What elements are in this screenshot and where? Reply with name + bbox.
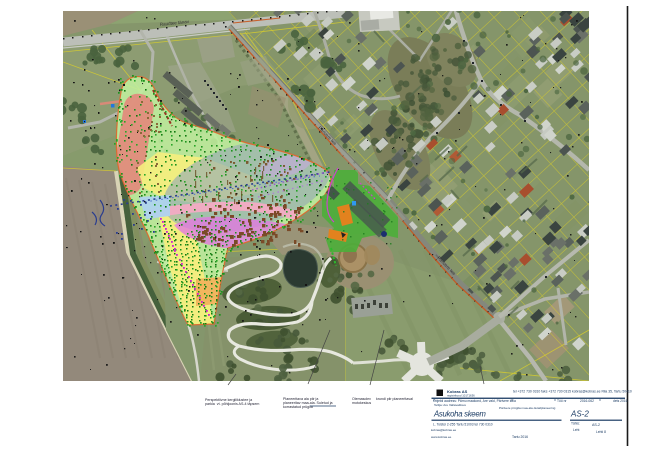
svg-text:Töö nr: Töö nr (557, 399, 567, 403)
svg-text:Tartu 2016: Tartu 2016 (512, 435, 528, 439)
svg-text:www.kobras.ee: www.kobras.ee (431, 435, 452, 439)
svg-text:kobras@kobras.ee: kobras@kobras.ee (431, 428, 457, 432)
svg-text:L. Tolstoi 2-255 Tartu 51003: L. Tolstoi 2-255 Tartu 51003 tel 730 031… (433, 423, 493, 427)
svg-text:Tellija: Are Vallavalitsus: Tellija: Are Vallavalitsus (434, 403, 466, 407)
svg-text:Pärivere prügila maa-ala detai: Pärivere prügila maa-ala detailplaneerin… (499, 406, 556, 410)
svg-text:Tähis:: Tähis: (571, 422, 580, 426)
svg-text:dets 2016: dets 2016 (613, 399, 628, 403)
svg-text:AS-2: AS-2 (570, 410, 589, 419)
svg-text:parkla vt. põhijoonis AS-4 tä: parkla vt. põhijoonis AS-4 täpsem (205, 402, 259, 406)
svg-text:Leht: Leht (573, 428, 580, 432)
svg-text:AS-2: AS-2 (592, 423, 600, 427)
svg-text:motokeskus: motokeskus (352, 401, 371, 405)
svg-text:registrikood 10171636: registrikood 10171636 (447, 394, 475, 398)
svg-text:Lehti 8: Lehti 8 (596, 430, 606, 434)
svg-text:korrastatud prügila: korrastatud prügila (283, 405, 313, 409)
svg-text:2016-062: 2016-062 (580, 399, 594, 403)
svg-text:tel +372 730 0310 faks +372: tel +372 730 0310 faks +372 730 0315 kob… (513, 390, 632, 394)
svg-text:Asukoha skeem: Asukoha skeem (433, 410, 486, 419)
